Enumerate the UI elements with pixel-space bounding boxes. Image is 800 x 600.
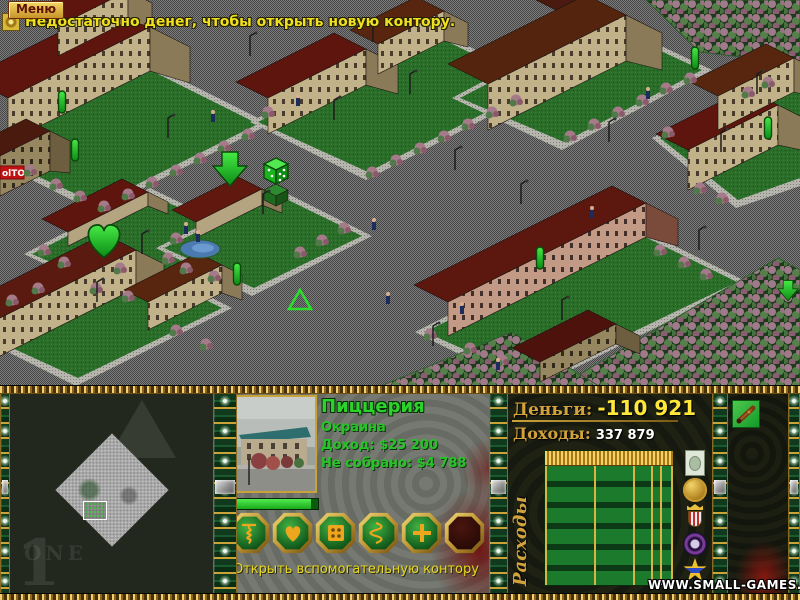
expenses-label: Расходы — [510, 454, 531, 586]
action-button-row — [237, 512, 485, 554]
action-hint: Открыть вспомогательную контору — [237, 562, 483, 577]
coat-of-arms-icon — [683, 504, 707, 530]
cigar-button[interactable] — [732, 400, 760, 428]
chain-border-top — [0, 385, 800, 394]
income-value: 337 879 — [596, 428, 655, 443]
business-district: Окраина — [321, 420, 466, 435]
business-progress-bar — [237, 498, 319, 510]
pond — [180, 240, 220, 258]
income-label: Доходы: — [513, 424, 591, 443]
city-map[interactable]: olTO — [0, 0, 800, 390]
heart-button[interactable] — [272, 512, 313, 554]
business-income: Доход: $25 200 — [321, 438, 466, 453]
business-photo — [237, 395, 317, 493]
money-label: Деньги: — [513, 400, 592, 420]
gem-divider-1 — [213, 394, 237, 593]
chain-border-bottom — [0, 593, 800, 600]
medal-icon — [683, 478, 707, 502]
coin-band — [545, 451, 673, 466]
corkscrew-button[interactable] — [237, 512, 270, 554]
plus-button[interactable] — [401, 512, 442, 554]
dice-icon — [325, 522, 347, 544]
expenses-chart — [544, 450, 674, 586]
menu-button[interactable]: Меню — [8, 1, 64, 19]
shop-sign: olTO — [0, 166, 25, 179]
dollar-one-text: ONE — [24, 541, 87, 565]
finance-section: Деньги: -110 921 Доходы: 337 879 Расходы — [508, 394, 712, 593]
cigar-icon — [733, 401, 759, 427]
site-watermark: WWW.SMALL-GAMES.INFO — [648, 578, 800, 592]
business-section: Пиццерия Окраина Доход: $25 200 Не собра… — [237, 394, 489, 593]
award-icons-column — [682, 450, 708, 582]
business-name: Пиццерия — [321, 396, 466, 417]
empty-slot-button[interactable] — [444, 512, 485, 554]
gold-rule — [512, 420, 678, 422]
gem-divider-2 — [489, 394, 508, 593]
business-uncollected: Не собрано: $4 788 — [321, 456, 466, 471]
side-section — [728, 394, 788, 593]
game-screen: olTO — [0, 0, 800, 600]
money-value: -110 921 — [597, 396, 696, 420]
money-line: Деньги: -110 921 — [513, 396, 696, 420]
gem-divider-3 — [712, 394, 728, 593]
status-message: Недостаточно денег, чтобы открыть новую … — [25, 14, 455, 30]
seal-icon — [683, 532, 707, 556]
bottom-panel: 1 ONE — [0, 385, 800, 600]
income-line: Доходы: 337 879 — [513, 424, 655, 443]
minimap-section: 1 ONE — [10, 394, 213, 593]
corkscrew-icon — [239, 521, 261, 545]
gem-border-left — [0, 394, 10, 593]
heart-icon — [281, 521, 305, 545]
dice-button[interactable] — [315, 512, 356, 554]
spring-button[interactable] — [358, 512, 399, 554]
marker-dice — [264, 158, 288, 184]
plus-icon — [411, 522, 433, 544]
status-message-row: Недостаточно денег, чтобы открыть новую … — [2, 13, 455, 31]
minimap-viewport[interactable] — [83, 501, 107, 520]
spring-icon — [368, 521, 390, 545]
svg-text:olTO: olTO — [2, 169, 25, 179]
dollar-bill-icon — [685, 450, 705, 476]
gem-border-right — [788, 394, 800, 593]
